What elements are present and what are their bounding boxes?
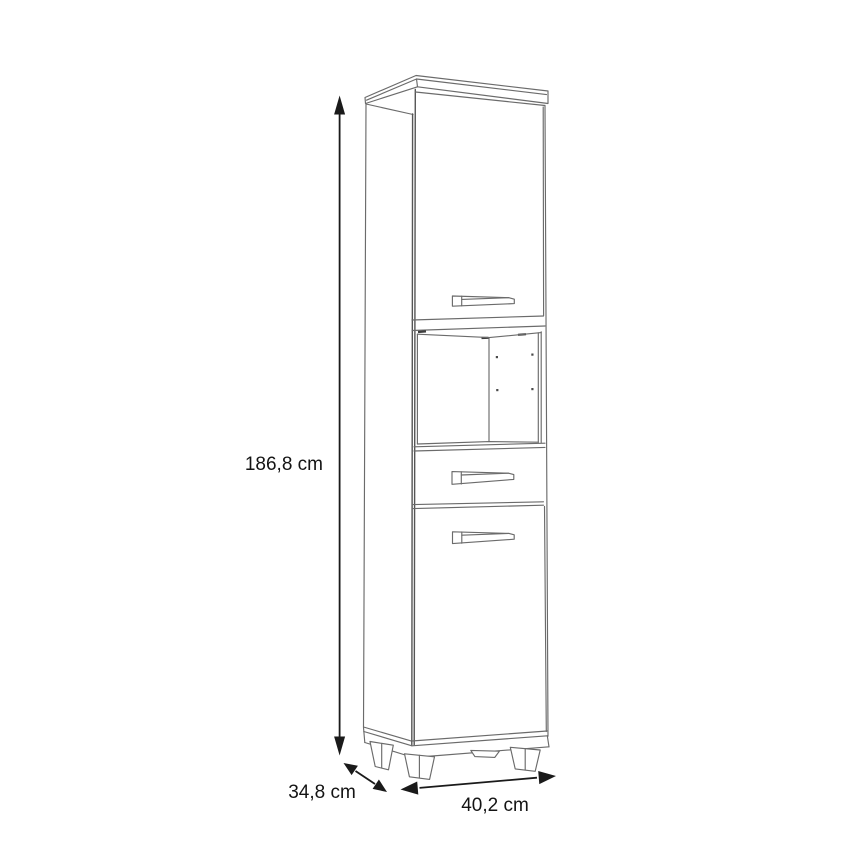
handle-inner-line — [462, 533, 509, 535]
feet — [370, 742, 540, 780]
front-left-corner — [412, 90, 416, 745]
arrowhead-up-left-icon — [344, 763, 358, 775]
cabinet-drawing — [364, 76, 550, 780]
hinge-mark-left — [418, 331, 426, 332]
top-door — [412, 92, 545, 320]
shelf-pin-hole — [496, 356, 498, 358]
height-dimension-label: 186,8 cm — [245, 454, 323, 475]
bottom-door — [412, 507, 547, 742]
open-shelf-niche — [412, 326, 545, 451]
shelf-bottom-band-bottom — [414, 447, 545, 451]
width-dimension-line — [420, 778, 538, 788]
bottom-door-bottom-edge — [412, 731, 547, 741]
niche-top-back-edge-right — [489, 333, 541, 338]
plinth-right-cap — [547, 736, 549, 747]
niche-top-back-edge-left — [417, 334, 489, 337]
drawer-bottom-band-top — [413, 502, 543, 505]
height-dimension: 186,8 cm — [245, 96, 345, 756]
handle-inner-line — [461, 473, 508, 475]
cabinet-technical-drawing: 186,8 cm 34,8 cm 40,2 cm — [0, 0, 868, 868]
width-dimension-label: 40,2 cm — [461, 795, 529, 816]
depth-dimension-line — [356, 771, 376, 784]
plinth-left-cap — [364, 728, 365, 743]
dimension-diagram: 186,8 cm 34,8 cm 40,2 cm — [0, 0, 868, 868]
side-panel-left-edge — [364, 104, 367, 727]
arrowhead-down-right-icon — [373, 780, 387, 793]
foot-front-right — [510, 747, 540, 771]
handle-inner-line — [462, 298, 509, 300]
top-door-handle — [452, 296, 514, 306]
shelf-pin-hole — [531, 354, 533, 356]
drawer-handle — [452, 472, 514, 485]
foot-side-left — [370, 742, 393, 770]
side-panel — [364, 104, 414, 741]
arrowhead-left-icon — [401, 782, 419, 795]
bottom-door-handle — [453, 532, 515, 544]
top-panel — [365, 76, 548, 104]
depth-dimension: 34,8 cm — [288, 763, 387, 803]
foot-outline — [471, 750, 500, 757]
top-door-bottom-edge — [412, 316, 544, 320]
shelf-band-front-edge — [412, 326, 545, 331]
bottom-door-right-edge — [545, 507, 547, 732]
shelf-pin-hole — [531, 388, 533, 390]
arrowhead-up-icon — [334, 96, 345, 115]
drawer-bottom-band-bottom — [413, 505, 543, 508]
foot-front-left — [405, 754, 435, 780]
drawer — [413, 472, 543, 509]
foot-back-center — [471, 750, 500, 757]
side-panel-top-edge — [366, 104, 413, 115]
plinth-top-edge-front — [412, 736, 547, 746]
shelf-pin-hole — [496, 389, 498, 391]
arrowhead-right-icon — [538, 771, 556, 784]
corner-line-inner — [414, 90, 415, 745]
depth-dimension-label: 34,8 cm — [288, 782, 356, 803]
corner-line-outer — [412, 114, 413, 745]
arrowhead-down-icon — [334, 737, 345, 756]
